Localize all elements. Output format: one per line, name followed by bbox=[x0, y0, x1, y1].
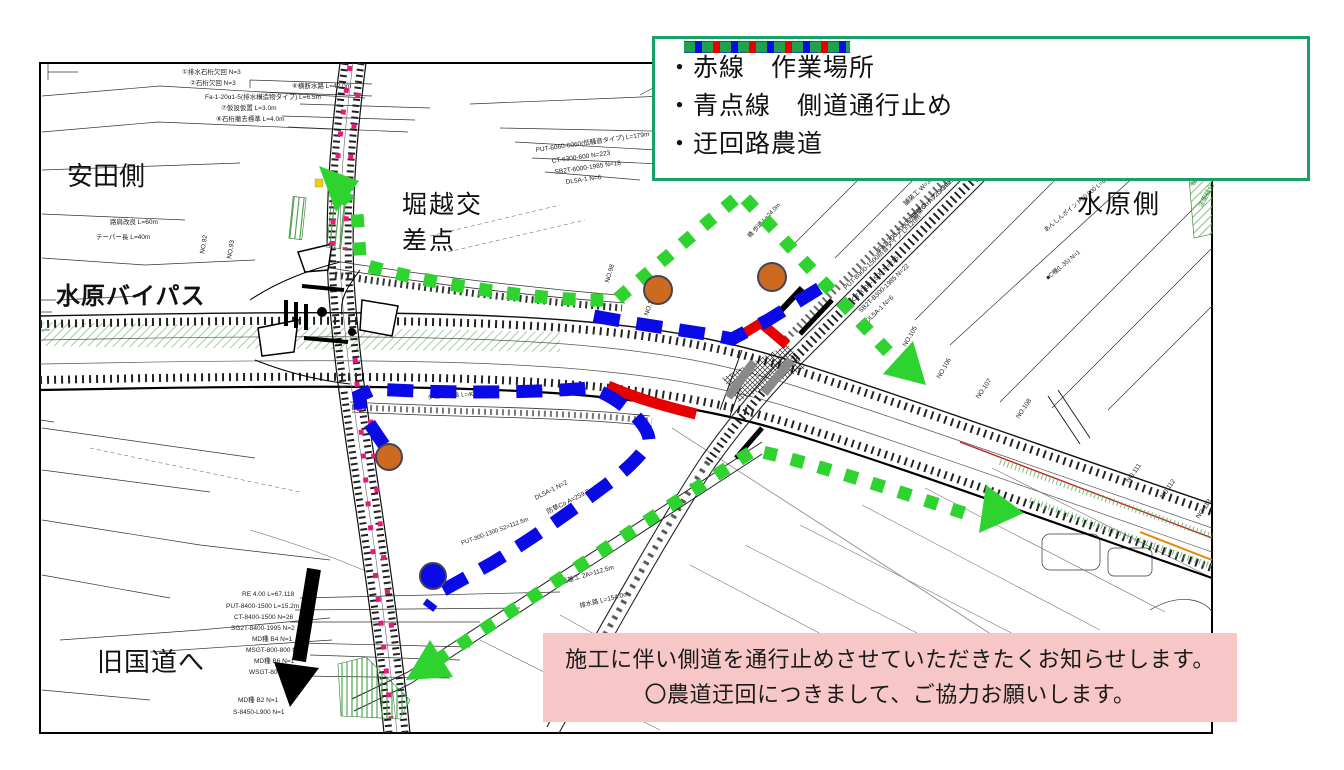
map-annotation: 路肩改良 L=60m bbox=[110, 217, 158, 226]
orange-point-marker bbox=[758, 263, 786, 291]
notice-line2: 〇農道迂回につきまして、ご協力お願いします。 bbox=[543, 678, 1237, 712]
map-annotation: テーパー長 L=40m bbox=[96, 233, 150, 241]
label-suibara-side: 水原側 bbox=[1077, 184, 1161, 221]
label-to-old-national-road: 旧国道へ bbox=[97, 642, 205, 679]
green-dotted-line-icon bbox=[681, 39, 853, 55]
map-annotation: ⑧石桁撤去標準 L=4.0m bbox=[216, 114, 285, 123]
label-horikoshi-intersection: 堀越交 差点 bbox=[402, 187, 483, 260]
label-yasuda-side: 安田側 bbox=[67, 156, 145, 193]
map-annotation: S-8450-L900 N=1 bbox=[233, 709, 285, 716]
label-horikoshi-line1: 堀越交 bbox=[402, 187, 483, 223]
orange-point-marker bbox=[644, 276, 672, 304]
map-annotation: MD種 B4 N=1 bbox=[252, 635, 293, 643]
legend-box: ・赤線 作業場所 ・青点線 側道通行止め ・迂回路農道 bbox=[652, 36, 1310, 181]
notice-banner: 施工に伴い側道を通行止めさせていただきたくお知らせします。 〇農道迂回につきまし… bbox=[543, 633, 1237, 722]
map-annotation: SG2T-8400-1995 N=2 bbox=[231, 625, 295, 632]
map-annotation: MD種 B6 N=1 bbox=[254, 657, 295, 665]
map-annotation: RE 4.00 L=67.118 bbox=[242, 591, 294, 598]
orange-point-marker bbox=[376, 444, 402, 470]
map-annotation: CT-8400-1500 N=26 bbox=[234, 614, 293, 621]
legend-label: ・青点線 側道通行止め bbox=[667, 86, 953, 122]
map-annotation: ①排水石桁欠回 N=3 bbox=[182, 67, 241, 76]
yellow-point-marker bbox=[315, 179, 323, 187]
label-suibara-bypass: 水原バイパス bbox=[56, 276, 206, 311]
notice-line1: 施工に伴い側道を通行止めさせていただきたくお知らせします。 bbox=[543, 643, 1237, 677]
map-annotation: PUT-8400-1500 L=15.2m bbox=[226, 603, 299, 610]
map-annotation: ⑦仮設仮置 L=3.0m bbox=[221, 103, 277, 112]
map-annotation: ⑥横断水路 L=42.0m bbox=[292, 81, 351, 90]
construction-notice-map: ①排水石桁欠回 N=3②石桁欠回 N=3⑥横断水路 L=42.0mFa-1-20… bbox=[0, 0, 1344, 770]
blue-point-marker bbox=[420, 563, 446, 589]
label-horikoshi-line2: 差点 bbox=[402, 223, 483, 259]
map-annotation: Fa-1-20α1-5(排水構造物タイプ) L=6.5m bbox=[205, 92, 321, 101]
legend-item-detour-farm-road: ・迂回路農道 bbox=[655, 123, 1307, 161]
map-annotation: MD種 B2 N=1 bbox=[238, 696, 279, 704]
legend-label: ・迂回路農道 bbox=[667, 124, 823, 160]
map-annotation: ②石桁欠回 N=3 bbox=[190, 78, 236, 87]
legend-item-side-road-closed: ・青点線 側道通行止め bbox=[655, 85, 1307, 123]
